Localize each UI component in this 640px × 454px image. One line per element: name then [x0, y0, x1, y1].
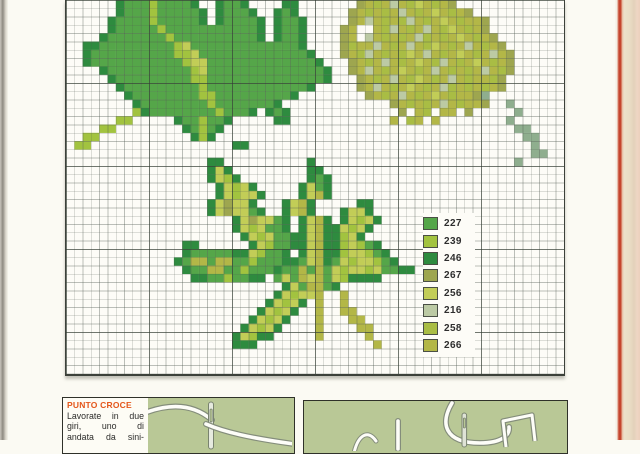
instructions-text: PUNTO CROCE Lavorate in due giri, uno di…: [63, 398, 148, 453]
legend-thread-code: 256: [444, 288, 462, 299]
legend-thread-code: 216: [444, 305, 462, 316]
legend-swatch: [423, 304, 438, 317]
legend-item: 239: [423, 232, 475, 249]
legend-swatch: [423, 217, 438, 230]
left-page-edge: [0, 0, 8, 440]
instruction-line: giri, uno di: [67, 421, 144, 431]
needle-icon: [462, 413, 467, 447]
legend-swatch: [423, 287, 438, 300]
legend-swatch: [423, 322, 438, 335]
legend-thread-code: 266: [444, 340, 462, 351]
legend-swatch: [423, 235, 438, 248]
legend-item: 227: [423, 215, 475, 232]
stitch-cells: [66, 0, 564, 374]
legend-item: 256: [423, 285, 475, 302]
legend-swatch: [423, 269, 438, 282]
legend-thread-code: 258: [444, 323, 462, 334]
legend-thread-code: 227: [444, 218, 462, 229]
legend-item: 216: [423, 302, 475, 319]
legend-item: 246: [423, 250, 475, 267]
legend-thread-code: 246: [444, 253, 462, 264]
stitch-diagram-illustration: [304, 401, 564, 451]
legend-item: 267: [423, 267, 475, 284]
instructions-box: PUNTO CROCE Lavorate in due giri, uno di…: [62, 397, 295, 454]
stitch-diagram-box: [303, 400, 568, 454]
legend-thread-code: 239: [444, 236, 462, 247]
needle-illustration: [148, 398, 294, 453]
legend-thread-code: 267: [444, 270, 462, 281]
instruction-line: Lavorate in due: [67, 411, 144, 421]
legend-item: 258: [423, 319, 475, 336]
color-legend: 227239246267256216258266: [423, 213, 475, 357]
stitch-chart-panel: [65, 0, 565, 376]
legend-swatch: [423, 252, 438, 265]
instruction-line: andata da sini-: [67, 432, 144, 442]
legend-swatch: [423, 339, 438, 352]
magazine-page: 227239246267256216258266 PUNTO CROCE Lav…: [0, 0, 640, 440]
right-page-edge: [615, 0, 640, 440]
instructions-title: PUNTO CROCE: [67, 400, 144, 410]
legend-item: 266: [423, 337, 475, 354]
